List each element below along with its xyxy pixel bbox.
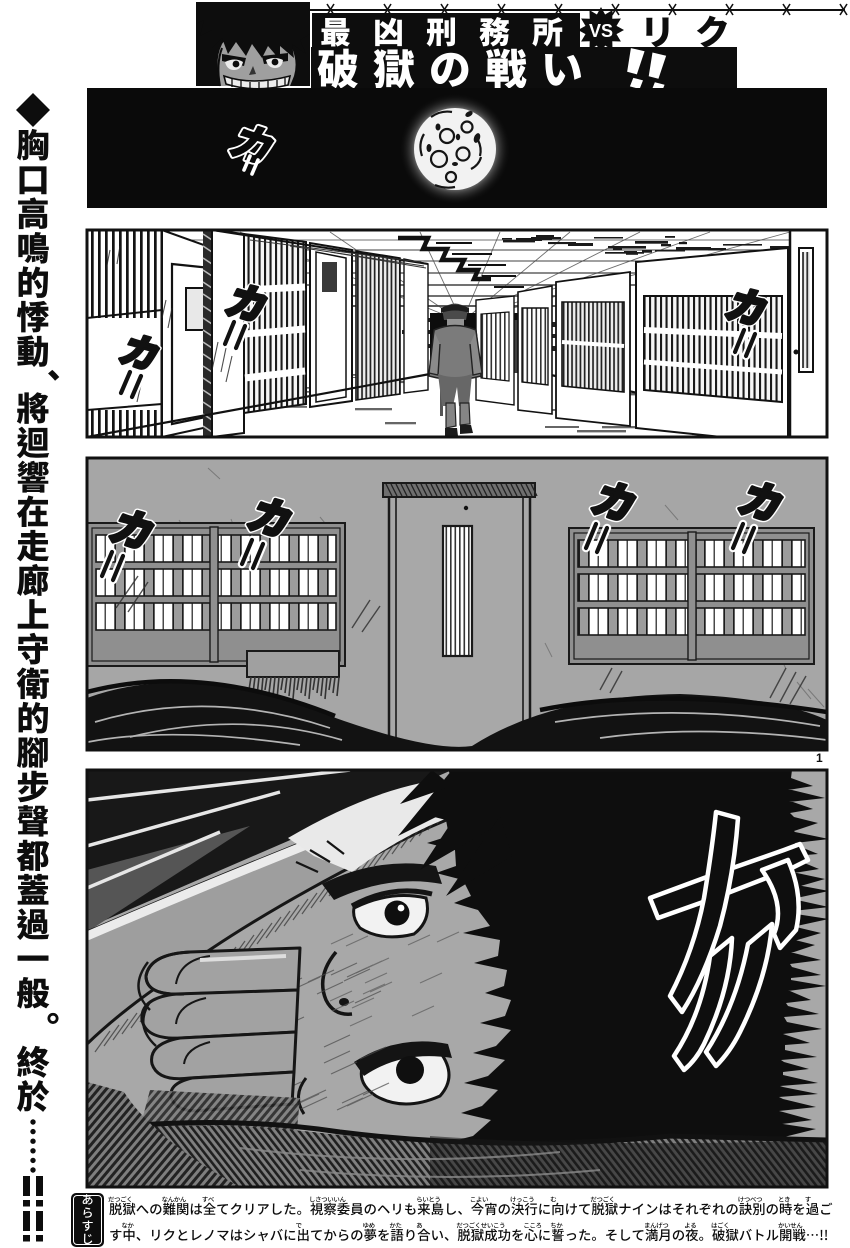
svg-text:VS: VS [589, 21, 613, 41]
svg-text:1: 1 [816, 751, 823, 765]
